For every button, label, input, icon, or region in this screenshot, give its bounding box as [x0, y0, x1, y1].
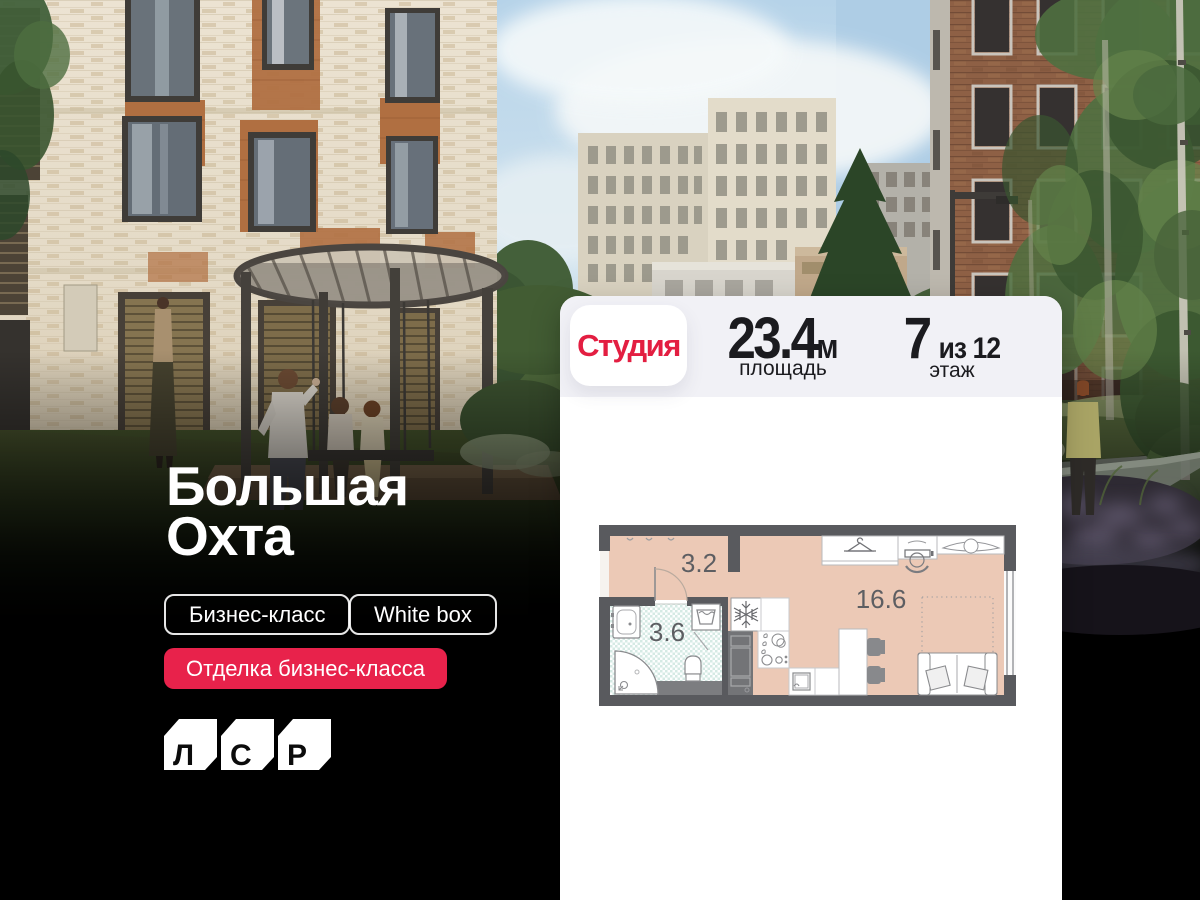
svg-text:3.2: 3.2	[681, 548, 717, 578]
svg-text:3.6: 3.6	[649, 617, 685, 647]
svg-text:16.6: 16.6	[856, 584, 907, 614]
